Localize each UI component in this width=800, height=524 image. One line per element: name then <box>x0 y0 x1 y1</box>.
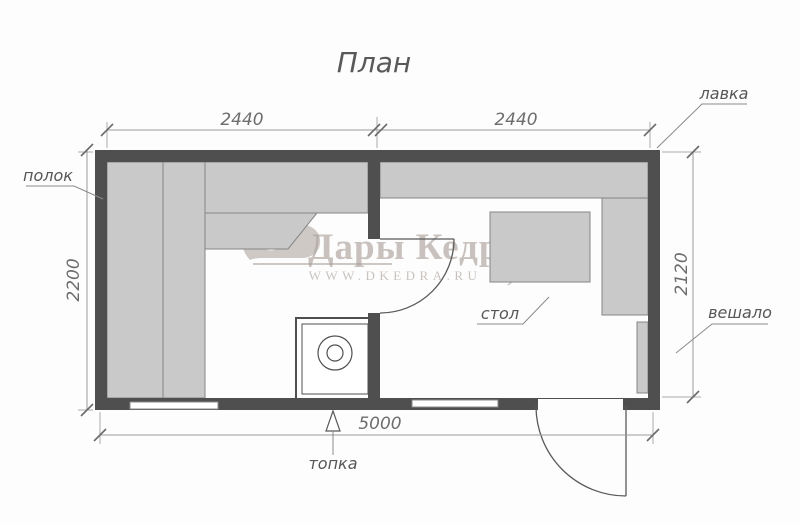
stove-chimney-inner <box>327 345 343 361</box>
dimension-right: 2120 <box>662 146 701 403</box>
window-right-room <box>412 400 498 407</box>
dimension-top: 2440 2440 <box>101 110 656 148</box>
dim-room-left-width: 2440 <box>220 110 263 130</box>
entry-door-swing <box>536 406 626 496</box>
annotation-veshalo: вешало <box>676 303 772 353</box>
wall-right <box>648 150 660 410</box>
partition-wall-upper <box>368 162 380 239</box>
annotation-topka: топка <box>308 411 357 473</box>
polok-bench-left-inner <box>163 162 205 398</box>
label-lavka: лавка <box>699 84 749 103</box>
dim-height-left: 2200 <box>64 258 84 301</box>
table <box>490 212 590 282</box>
partition-wall-lower <box>368 313 380 398</box>
watermark-brand: Дары Кедра <box>308 227 520 268</box>
label-stol: стол <box>481 304 519 323</box>
window-left-room <box>130 402 218 409</box>
dim-room-right-width: 2440 <box>494 110 537 130</box>
wall-top <box>95 150 660 162</box>
veshalo-strip <box>637 322 648 393</box>
watermark-url: WWW.DKEDRA.RU <box>309 268 482 283</box>
stove <box>296 318 374 400</box>
floor-plan-canvas: План Дары Кедра WWW.DKEDRA.RU <box>0 0 800 524</box>
polok-bench-top <box>205 162 368 213</box>
label-polok: полок <box>23 166 73 185</box>
annotation-stol: стол <box>477 297 549 324</box>
dim-total-width: 5000 <box>358 414 401 434</box>
label-topka: топка <box>308 454 357 473</box>
annotation-polok: полок <box>23 166 103 199</box>
entry-door-opening <box>538 399 623 410</box>
floor-plan-page: План Дары Кедра WWW.DKEDRA.RU <box>0 0 800 524</box>
polok-bench-left-outer <box>107 162 163 398</box>
dimension-bottom: 5000 <box>94 412 659 444</box>
dim-height-right: 2120 <box>672 252 692 295</box>
annotation-lavka: лавка <box>657 84 748 148</box>
label-veshalo: вешало <box>708 303 772 322</box>
topka-arrow-icon <box>326 411 340 431</box>
lavka-bench-right <box>602 198 648 315</box>
wall-left <box>95 150 107 410</box>
page-title: План <box>337 46 411 79</box>
lavka-bench-top <box>380 162 648 198</box>
